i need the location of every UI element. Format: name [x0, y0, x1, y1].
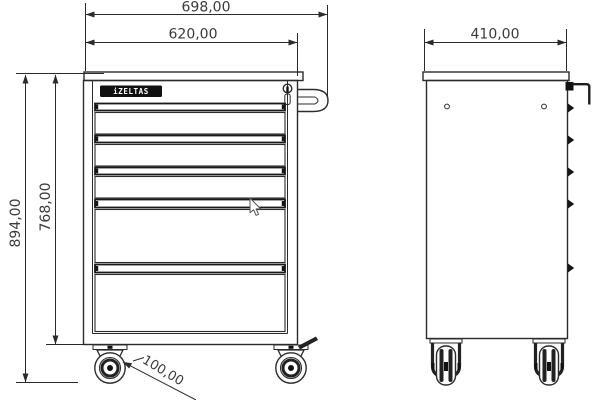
dimension-overall-width: 698,00	[86, 0, 328, 97]
drawer-5-handle	[95, 265, 285, 273]
dim-depth-label: 410,00	[471, 27, 520, 43]
dim-overall-height-label: 894,00	[8, 199, 24, 248]
dim-cabinet-width-label: 620,00	[169, 27, 218, 43]
caster-front-left	[93, 345, 127, 383]
side-handle-front	[298, 90, 329, 112]
dim-caster-diameter-label: 100,00	[139, 353, 186, 389]
caster-side-left	[430, 339, 462, 385]
drawer-stack	[95, 104, 285, 332]
dimension-depth: 410,00	[425, 27, 567, 72]
drawer-2	[95, 136, 285, 167]
side-handle-profile	[566, 82, 590, 105]
tool-trolley-drawing: 698,00 620,00 894,00 768,00 iZELTAS	[0, 0, 600, 400]
dim-overall-width-label: 698,00	[182, 0, 231, 16]
dimension-caster-diameter: 100,00	[123, 353, 196, 400]
drawer-3-handle	[95, 168, 285, 175]
front-tabletop	[84, 72, 303, 81]
caster-side-right	[533, 339, 565, 385]
technical-drawing-canvas: 698,00 620,00 894,00 768,00 iZELTAS	[0, 0, 600, 400]
dim-cabinet-height-label: 768,00	[38, 183, 54, 232]
drawer-4-face	[95, 210, 285, 263]
dimension-cabinet-height: 768,00	[38, 75, 86, 345]
drawer-5	[95, 265, 285, 332]
side-body	[427, 81, 568, 339]
drawer-5-face	[95, 275, 285, 332]
drawer-2-face	[95, 145, 285, 167]
caster-front-right	[274, 337, 318, 384]
drawer-3-face	[95, 177, 285, 199]
brand-badge-label: iZELTAS	[113, 87, 149, 96]
drawer-1-face	[95, 113, 285, 135]
drawer-edge-tabs	[568, 103, 574, 272]
screw-hole-left	[445, 104, 450, 109]
drawer-2-handle	[95, 136, 285, 143]
front-view: iZELTAS	[84, 72, 329, 383]
brand-badge: iZELTAS	[100, 86, 162, 98]
dimension-cabinet-width: 620,00	[86, 27, 298, 77]
drawer-3	[95, 168, 285, 199]
drawer-1	[95, 104, 285, 135]
screw-hole-right	[542, 104, 547, 109]
drawer-1-handle	[95, 104, 285, 111]
side-view: 410,00	[423, 27, 589, 386]
side-tabletop	[423, 72, 569, 81]
